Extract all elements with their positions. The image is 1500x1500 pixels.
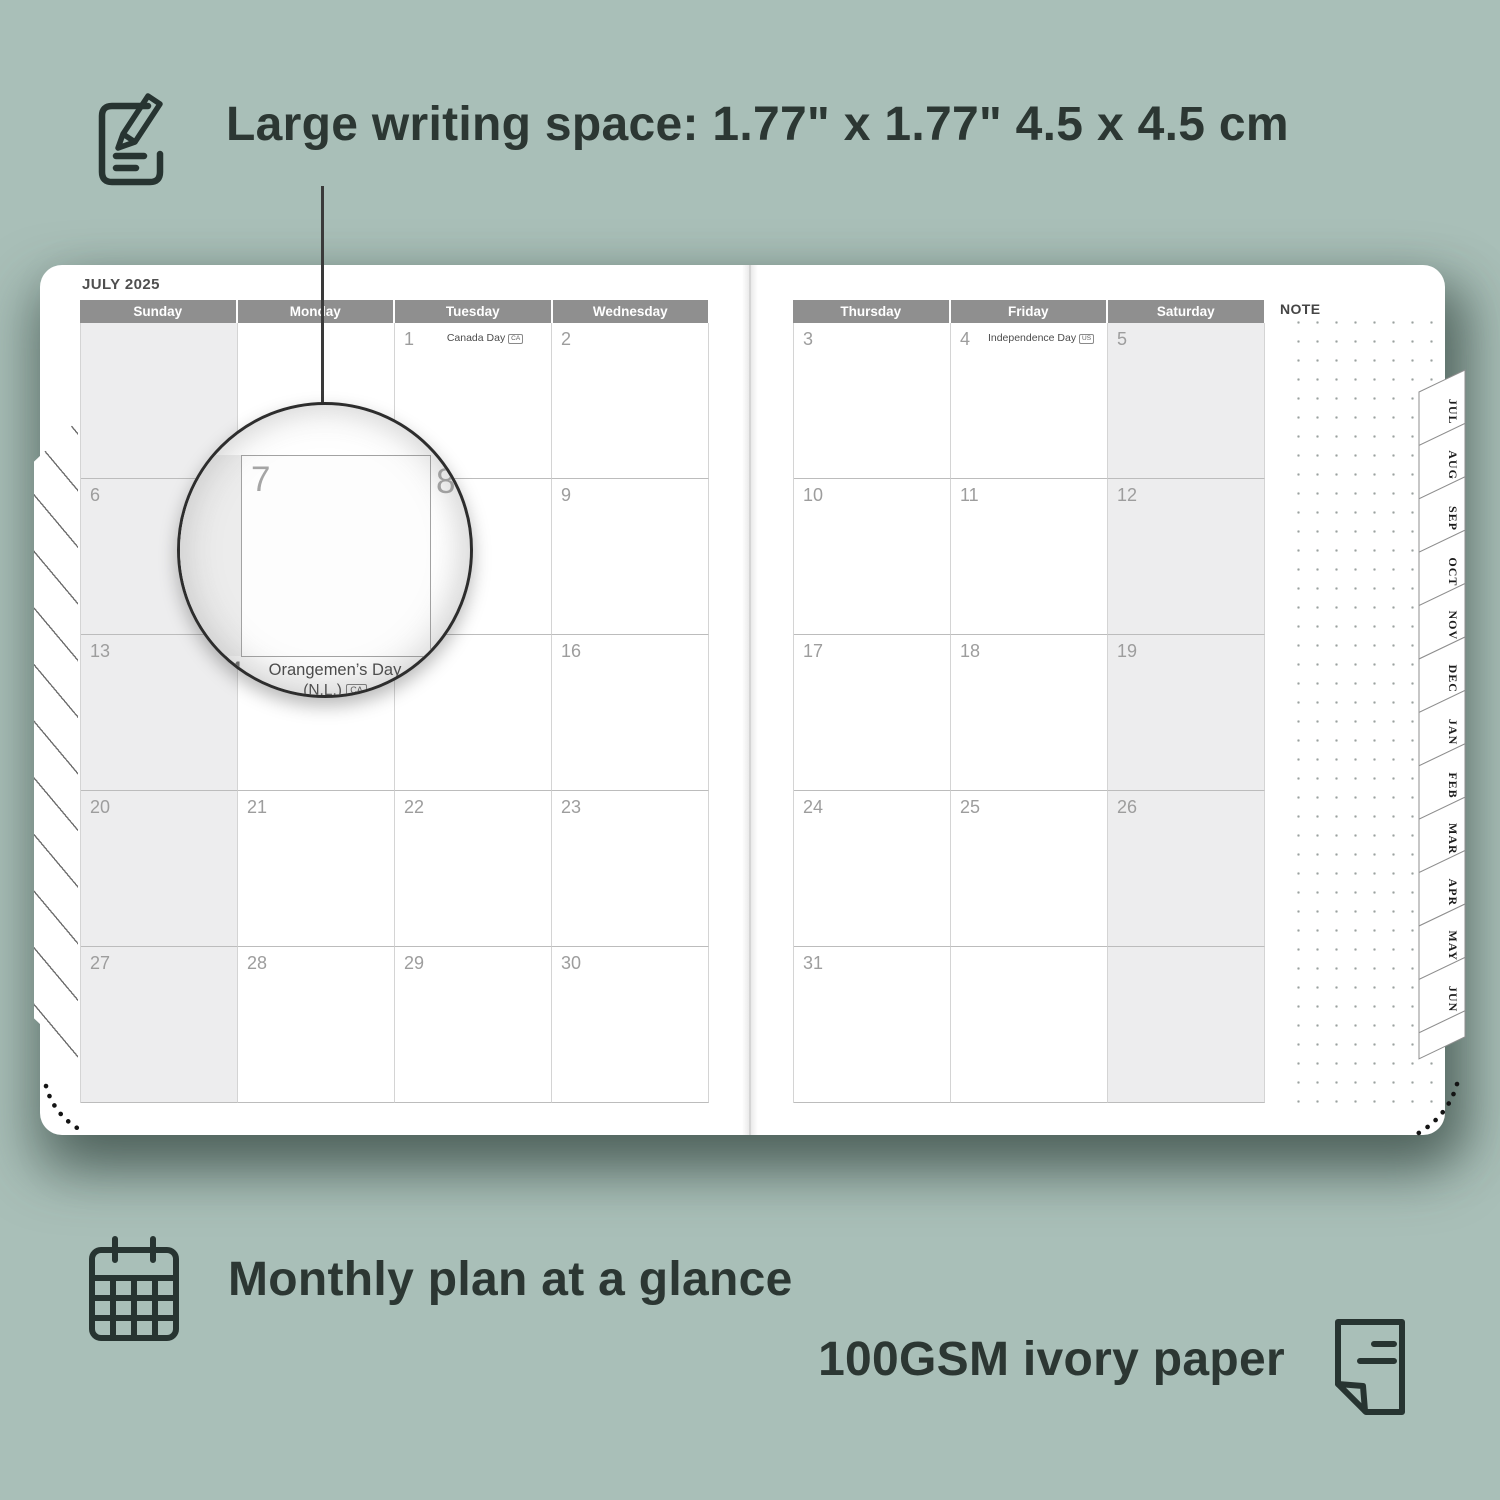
weekday-sunday: Sunday	[80, 300, 236, 323]
calendar-cell	[1108, 947, 1265, 1103]
month-tabs: JULAUGSEPOCTNOVDECJANFEBMARAPRMAYJUN	[1419, 370, 1471, 1085]
day-number: 11	[960, 485, 979, 506]
weekday-monday: Monday	[238, 300, 394, 323]
day-number: 25	[960, 797, 980, 818]
calendar-cell	[951, 947, 1108, 1103]
holiday-label: Independence Day US	[979, 332, 1103, 344]
day-number: 30	[561, 953, 581, 974]
month-tab-jun: JUN	[1446, 986, 1460, 1012]
monthly-plan-label: Monthly plan at a glance	[228, 1252, 793, 1307]
month-tab-sep: SEP	[1446, 506, 1460, 531]
weekday-header-left: Sunday Monday Tuesday Wednesday	[80, 300, 708, 323]
day-number: 31	[803, 953, 823, 974]
calendar-grid-icon	[85, 1233, 183, 1345]
magnifier-circle: 7 8 14 Orangemen’s Day (N.L.) CA	[177, 402, 473, 698]
month-tab-jan: JAN	[1446, 719, 1460, 745]
calendar-cell: 26	[1108, 791, 1265, 947]
spine-divider	[742, 265, 758, 1135]
day-number: 5	[1117, 329, 1127, 350]
month-tab-may: MAY	[1446, 930, 1460, 961]
calendar-cell: 19	[1108, 635, 1265, 791]
day-number: 19	[1117, 641, 1137, 662]
weekday-tuesday: Tuesday	[395, 300, 551, 323]
holiday-label: Canada Day CA	[423, 332, 547, 344]
calendar-cell: 16	[552, 635, 709, 791]
month-tab-jul: JUL	[1446, 399, 1460, 425]
calendar-cell: 30	[552, 947, 709, 1103]
country-badge: CA	[508, 334, 523, 344]
month-tab-dec: DEC	[1446, 665, 1460, 693]
magnified-next-day-number: 8	[436, 462, 455, 502]
day-number: 6	[90, 485, 100, 506]
paper-label: 100GSM ivory paper	[0, 1332, 1285, 1387]
feature-paper	[1322, 1316, 1414, 1425]
day-number: 10	[803, 485, 823, 506]
calendar-cell: 12	[1108, 479, 1265, 635]
month-tab-oct: OCT	[1446, 557, 1460, 586]
day-number: 3	[803, 329, 813, 350]
day-number: 12	[1117, 485, 1137, 506]
calendar-cell: 21	[238, 791, 395, 947]
corner-dots-left	[40, 1068, 150, 1146]
weekday-wednesday: Wednesday	[553, 300, 709, 323]
note-label: NOTE	[1280, 301, 1321, 317]
calendar-cell: 20	[81, 791, 238, 947]
calendar-grid-right: 34Independence Day US5101112171819242526…	[793, 323, 1265, 1103]
feature-writing-space	[92, 82, 172, 193]
calendar-cell: 17	[794, 635, 951, 791]
weekday-saturday: Saturday	[1108, 300, 1264, 323]
month-tab-apr: APR	[1446, 878, 1460, 906]
magnified-holiday-label: Orangemen’s Day	[232, 661, 438, 680]
day-number: 18	[960, 641, 980, 662]
day-number: 1	[404, 329, 414, 350]
calendar-cell: 10	[794, 479, 951, 635]
callout-connector-line	[321, 186, 324, 406]
calendar-cell: 2	[552, 323, 709, 479]
day-number: 23	[561, 797, 581, 818]
note-dot-grid	[1283, 305, 1439, 1105]
calendar-cell: 3	[794, 323, 951, 479]
day-number: 9	[561, 485, 571, 506]
weekday-header-right: Thursday Friday Saturday	[793, 300, 1264, 323]
magnified-day-number: 7	[251, 460, 270, 500]
calendar-cell: 9	[552, 479, 709, 635]
day-number: 22	[404, 797, 424, 818]
day-number: 21	[247, 797, 267, 818]
month-tab-mar: MAR	[1446, 823, 1460, 855]
calendar-cell: 23	[552, 791, 709, 947]
calendar-cell: 18	[951, 635, 1108, 791]
calendar-cell: 29	[395, 947, 552, 1103]
day-number: 26	[1117, 797, 1137, 818]
day-number: 29	[404, 953, 424, 974]
day-number: 27	[90, 953, 110, 974]
day-number: 16	[561, 641, 581, 662]
magnified-sunday-shade	[180, 455, 242, 656]
month-tab-feb: FEB	[1446, 772, 1460, 798]
month-tab-nov: NOV	[1446, 610, 1460, 640]
writing-space-label: Large writing space: 1.77" x 1.77" 4.5 x…	[226, 97, 1289, 152]
corner-dots-right	[1360, 1068, 1470, 1146]
day-number: 24	[803, 797, 823, 818]
calendar-cell: 5	[1108, 323, 1265, 479]
day-number: 4	[960, 329, 970, 350]
calendar-cell: 4Independence Day US	[951, 323, 1108, 479]
calendar-cell: 24	[794, 791, 951, 947]
month-title: JULY 2025	[82, 276, 160, 293]
month-tab-aug: AUG	[1446, 450, 1460, 480]
day-number: 20	[90, 797, 110, 818]
day-number: 2	[561, 329, 571, 350]
calendar-cell: 25	[951, 791, 1108, 947]
planner-spread: JULY 2025 Sunday Monday Tuesday Wednesda…	[40, 265, 1445, 1135]
calendar-cell: 22	[395, 791, 552, 947]
pencil-notepad-icon	[92, 82, 172, 188]
left-edge-hatch	[34, 420, 78, 1060]
day-number: 28	[247, 953, 267, 974]
weekday-thursday: Thursday	[793, 300, 949, 323]
day-number: 13	[90, 641, 110, 662]
paper-sheet-icon	[1322, 1316, 1414, 1420]
magnified-country-badge: CA	[346, 684, 367, 696]
calendar-cell: 28	[238, 947, 395, 1103]
day-number: 17	[803, 641, 823, 662]
calendar-cell: 31	[794, 947, 951, 1103]
calendar-cell: 11	[951, 479, 1108, 635]
weekday-friday: Friday	[951, 300, 1107, 323]
country-badge: US	[1079, 334, 1094, 344]
